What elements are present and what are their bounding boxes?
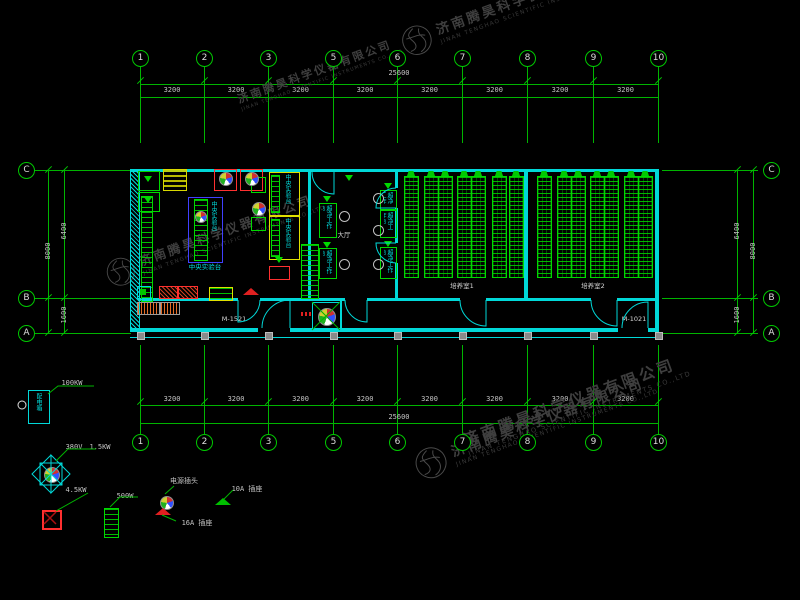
hood-icon: [243, 288, 259, 295]
dim-span-bottom: 3200: [287, 395, 315, 403]
growth-rack: [537, 176, 552, 278]
grid-bubble-top-2: 2: [196, 50, 213, 67]
grid-bubble-bottom-1: 1: [132, 434, 149, 451]
dim-right-6400: 6400: [733, 213, 741, 249]
dim-total-bottom: 25600: [381, 413, 417, 421]
legend-socket10-label: 10A 插座: [226, 485, 268, 493]
column-marker: [524, 332, 532, 340]
grid-line-col: [658, 345, 659, 434]
central-bench-3-label: 中央实验台: [282, 218, 291, 256]
grid-bubble-left-C: C: [18, 162, 35, 179]
dim-span-bottom: 3200: [546, 395, 574, 403]
dim-line: [140, 405, 658, 406]
dim-span-top: 3200: [222, 86, 250, 94]
fan-tag-mark: [305, 312, 307, 316]
growth-rack: [590, 176, 605, 278]
legend-fan-icon: [44, 467, 60, 483]
grid-line-col: [140, 65, 141, 143]
grid-line-col: [140, 345, 141, 434]
dim-span-top: 3200: [158, 86, 186, 94]
grid-line-col: [268, 345, 269, 434]
growth-rack: [638, 176, 653, 278]
legend-socket16-icon: [155, 508, 171, 515]
growth-rack: [624, 176, 639, 278]
lamp-icon: [345, 175, 353, 181]
equipment-hatched: [159, 286, 178, 299]
column-marker: [137, 332, 145, 340]
dim-span-top: 3200: [351, 86, 379, 94]
grid-line-col: [527, 345, 528, 434]
watermark-cn-text: 济南腾昊科学仪器有限公司: [433, 0, 632, 39]
column-marker: [394, 332, 402, 340]
vestibule-fan-icon: [318, 308, 336, 326]
legend-socket-box: [42, 510, 62, 530]
column-marker: [459, 332, 467, 340]
wall: [367, 298, 460, 301]
dim-line: [140, 84, 658, 85]
grid-bubble-bottom-6: 7: [454, 434, 471, 451]
legend-fan-power2-label: 4.5KW: [62, 486, 90, 494]
dim-span-top: 3200: [416, 86, 444, 94]
grid-line-col: [333, 345, 334, 434]
grid-line-col: [204, 65, 205, 143]
shelf-rack: [301, 244, 319, 299]
clean-bench-label: 超净工作台: [323, 250, 332, 275]
dim-span-top: 3200: [481, 86, 509, 94]
column-marker: [265, 332, 273, 340]
grid-bubble-left-B: B: [18, 290, 35, 307]
wall: [524, 171, 528, 298]
lamp-icon: [384, 183, 392, 189]
stool: [339, 259, 350, 270]
column-marker: [201, 332, 209, 340]
equipment-outline: [269, 266, 290, 280]
equipment-hatched: [178, 286, 198, 299]
grid-bubble-bottom-5: 6: [389, 434, 406, 451]
dim-span-bottom: 3200: [222, 395, 250, 403]
grid-bubble-top-4: 5: [325, 50, 342, 67]
watermark-en-text: JINAN TENGHAO SCIENTIFIC INSTRUMENTS CO.…: [440, 0, 634, 45]
watermark: 济南腾昊科学仪器有限公司JINAN TENGHAO SCIENTIFIC INS…: [235, 33, 404, 112]
legend-rack-power-label: 500W: [112, 492, 138, 500]
central-bench-caption: 中央实验台: [184, 263, 226, 271]
central-bench-2-label: 中央实验台: [282, 174, 291, 212]
dim-span-bottom: 3200: [158, 395, 186, 403]
equipment-box: [251, 217, 266, 231]
grid-bubble-right-B: B: [763, 290, 780, 307]
lamp-icon: [275, 257, 283, 263]
dim-left-8000: 8000: [44, 233, 52, 269]
dim-span-top: 3200: [612, 86, 640, 94]
fan-tag-mark: [301, 312, 303, 316]
wall: [395, 171, 398, 188]
legend-distribution-box-label: 配电箱: [33, 393, 42, 419]
grid-bubble-bottom-7: 8: [519, 434, 536, 451]
fan-rotor-icon: [219, 172, 233, 186]
equipment-tag: [137, 302, 160, 315]
growth-rack: [438, 176, 453, 278]
growth-rack: [571, 176, 586, 278]
grid-line-col: [527, 65, 528, 143]
growth-rack: [557, 176, 572, 278]
fan-tag-mark: [309, 312, 311, 316]
dim-right-8000: 8000: [749, 233, 757, 269]
legend-voltage-label: 380V: [62, 443, 86, 451]
door-label-left: M-1521: [212, 315, 256, 323]
growth-rack: [604, 176, 619, 278]
wall: [130, 328, 258, 332]
grid-line-col: [462, 345, 463, 434]
grid-bubble-right-C: C: [763, 162, 780, 179]
wall: [486, 298, 591, 301]
grid-bubble-top-7: 8: [519, 50, 536, 67]
grid-bubble-top-1: 1: [132, 50, 149, 67]
clean-bench-label: 超净工作台: [384, 212, 393, 234]
dim-total-top: 25600: [381, 69, 417, 77]
bench-rail: [271, 219, 280, 257]
grid-bubble-bottom-3: 3: [260, 434, 277, 451]
watermark-logo-icon: [408, 440, 454, 486]
dim-span-top: 3200: [546, 86, 574, 94]
grid-bubble-bottom-2: 2: [196, 434, 213, 451]
growth-rack: [492, 176, 507, 278]
room-label-culture1: 培养室1: [444, 282, 480, 290]
wall: [655, 169, 659, 332]
clean-bench-label: 超净工作台: [323, 205, 332, 234]
chair-unit: [209, 287, 233, 301]
grid-line-col: [204, 345, 205, 434]
grid-line-row: [662, 298, 758, 299]
sink-dot-icon: [140, 289, 146, 295]
vent-icon: [144, 176, 152, 182]
growth-rack: [509, 176, 524, 278]
column-marker: [330, 332, 338, 340]
legend-rack-icon: [104, 508, 119, 538]
legend-socket16-label: 16A 插座: [176, 519, 218, 527]
room-label-culture2: 培养室2: [575, 282, 611, 290]
grid-line-col: [593, 345, 594, 434]
clean-bench-label: 超净工作台: [384, 192, 393, 206]
dim-span-top: 3200: [287, 86, 315, 94]
watermark: 济南腾昊科学仪器有限公司JINAN TENGHAO SCIENTIFIC INS…: [408, 364, 661, 485]
grid-line-col: [268, 65, 269, 143]
grid-line-col: [593, 65, 594, 143]
grid-bubble-bottom-4: 5: [325, 434, 342, 451]
grid-bubble-top-9: 10: [650, 50, 667, 67]
lamp-icon: [384, 241, 392, 247]
column-marker: [590, 332, 598, 340]
stool: [339, 211, 350, 222]
fan-rotor-icon: [245, 172, 259, 186]
bench-rail: [271, 175, 280, 213]
equipment-rotor-icon: [252, 202, 266, 216]
growth-rack: [471, 176, 486, 278]
dim-line: [140, 97, 658, 98]
growth-rack: [457, 176, 472, 278]
wall: [617, 298, 655, 301]
grid-line-col: [658, 65, 659, 143]
clean-bench-label: 超净工作台: [384, 249, 393, 275]
grid-bubble-right-A: A: [763, 325, 780, 342]
grid-line-col: [462, 65, 463, 143]
grid-bubble-left-A: A: [18, 325, 35, 342]
stool: [373, 225, 384, 236]
dim-span-bottom: 3200: [481, 395, 509, 403]
lamp-icon: [323, 196, 331, 202]
door-label-right: M-1021: [612, 315, 656, 323]
legend-plug-label: 电源插头: [164, 477, 204, 485]
legend-socket10-icon: [215, 498, 231, 505]
central-bench-label: 中央实验台: [208, 201, 217, 257]
cad-floorplan-canvas: 济南腾昊科学仪器有限公司JINAN TENGHAO SCIENTIFIC INS…: [0, 0, 800, 600]
vent-icon: [144, 197, 152, 203]
watermark-cn-text: 济南腾昊科学仪器有限公司: [235, 33, 402, 107]
grid-bubble-top-8: 9: [585, 50, 602, 67]
dim-span-bottom: 3200: [416, 395, 444, 403]
watermark-cn-text: 济南腾昊科学仪器有限公司: [448, 369, 657, 461]
grid-bubble-top-6: 7: [454, 50, 471, 67]
bench-device-icon: [195, 211, 207, 223]
lamp-icon: [323, 242, 331, 248]
dim-span-bottom: 3200: [612, 395, 640, 403]
legend-fan-power-label: 1.5KW: [86, 443, 114, 451]
growth-rack: [424, 176, 439, 278]
grid-bubble-bottom-9: 10: [650, 434, 667, 451]
grid-bubble-bottom-8: 9: [585, 434, 602, 451]
column-marker: [655, 332, 663, 340]
dim-span-bottom: 3200: [351, 395, 379, 403]
stool: [373, 259, 384, 270]
grid-line-row: [662, 170, 758, 171]
oven-unit: [163, 169, 187, 191]
grid-bubble-top-5: 6: [389, 50, 406, 67]
equipment-tag: [160, 302, 180, 315]
central-bench: [194, 199, 208, 261]
legend-power-label: 100KW: [56, 379, 88, 387]
grid-line-row: [662, 333, 758, 334]
growth-rack: [404, 176, 419, 278]
dim-left-6400: 6400: [60, 213, 68, 249]
dim-line: [140, 423, 658, 424]
grid-line-col: [333, 65, 334, 143]
stool: [373, 193, 384, 204]
grid-bubble-top-3: 3: [260, 50, 277, 67]
room-label-hall: 大厅: [333, 231, 355, 239]
